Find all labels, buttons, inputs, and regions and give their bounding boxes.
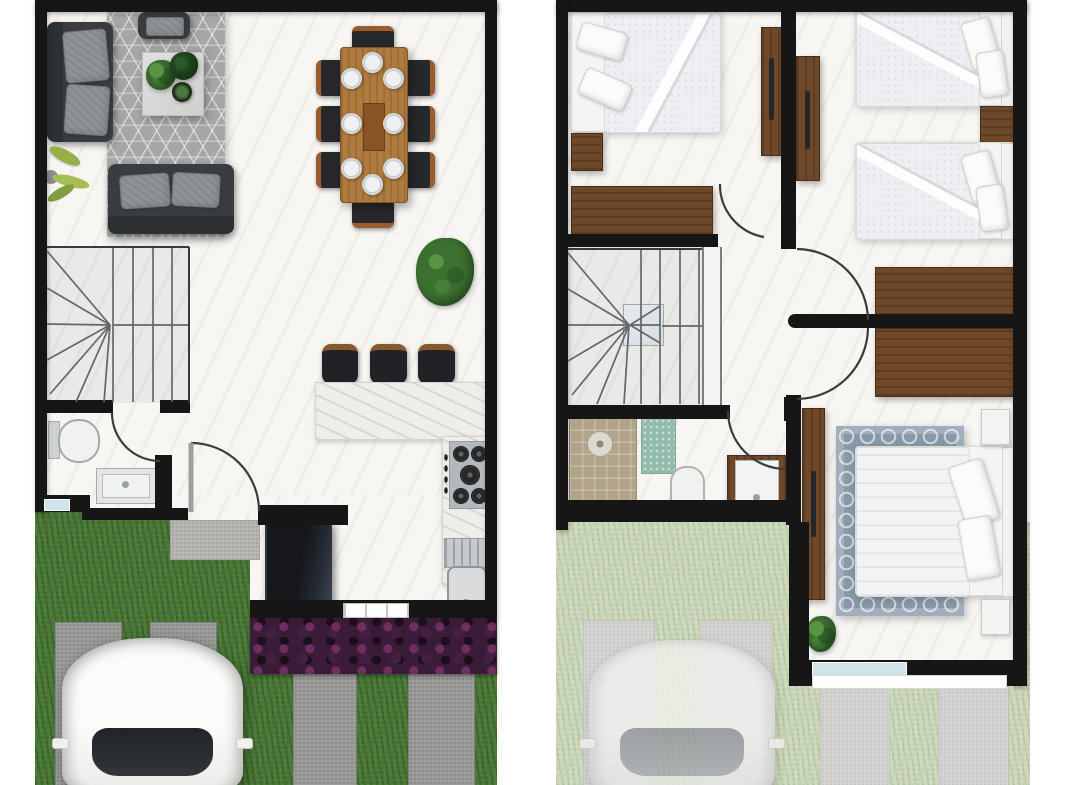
bathroom-door-arc bbox=[112, 413, 160, 461]
stair-treads bbox=[47, 247, 189, 402]
bathroom-door-arc bbox=[728, 411, 786, 469]
door-swing-arcs bbox=[112, 184, 868, 511]
stair-treads bbox=[568, 249, 702, 404]
bedroom-door-arc bbox=[797, 249, 868, 320]
master-door-arc bbox=[797, 328, 868, 399]
linework-overlay bbox=[0, 0, 1066, 785]
entry-door-arc bbox=[191, 443, 259, 511]
bedroom-door-arc bbox=[720, 184, 764, 237]
floor-plan-image bbox=[0, 0, 1066, 785]
